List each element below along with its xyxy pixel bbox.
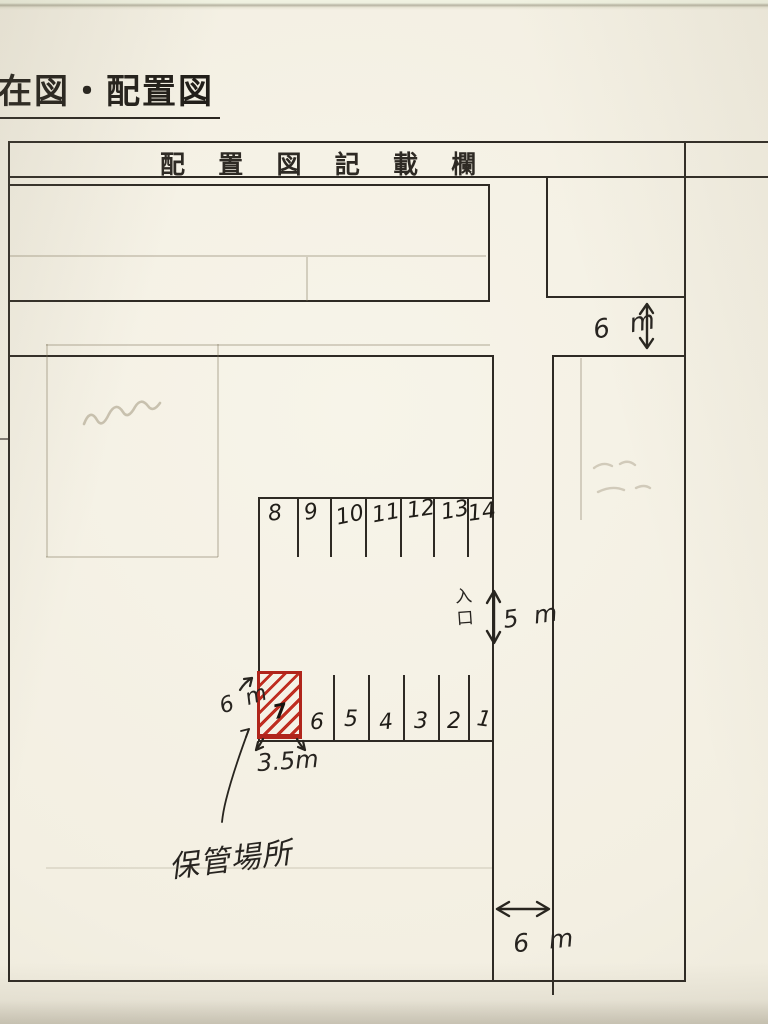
form-right-border: [684, 141, 686, 982]
stall-number: 5: [344, 707, 358, 732]
vertical-road-right-edge: [552, 355, 554, 995]
stall-divider: [365, 499, 367, 557]
left-margin-tick: [0, 438, 8, 440]
stall-number: 2: [447, 709, 461, 734]
stall-number: 9: [302, 499, 319, 526]
stall-divider: [333, 675, 335, 740]
left-block-right-edge: [488, 184, 490, 302]
stall-divider: [330, 499, 332, 557]
stall-number: 8: [267, 500, 284, 526]
stall-number: 3: [414, 709, 428, 734]
road-bottom-edge-left-segment: [8, 355, 494, 357]
pencil-ghost-scribble: [84, 402, 160, 424]
top-road-width-label: 6 m: [591, 304, 663, 345]
pencil-ghost-line: [10, 255, 486, 257]
stall-number: 4: [378, 709, 395, 735]
right-block-left-edge: [546, 178, 548, 298]
storage-location-label: 保管場所: [166, 828, 294, 887]
pencil-ghost-line: [46, 867, 492, 869]
vertical-road-left-edge: [492, 355, 494, 982]
left-block-bottom-edge: [8, 300, 490, 302]
photographed-parking-layout-form: 在図・配置図 配 置 図 記 載 欄 8 9 10 11 12 13 14 7 …: [0, 0, 768, 1024]
left-block-top-edge: [8, 184, 490, 186]
pencil-ghost-line: [46, 556, 218, 558]
form-bottom-border: [8, 980, 686, 982]
pencil-ghost-marks: [594, 462, 650, 492]
form-header-bottom-border: [8, 176, 768, 178]
stall-number: 10: [334, 500, 367, 530]
stall-number: 12: [405, 495, 436, 524]
pencil-ghost-line: [217, 344, 219, 557]
bottom-road-width-label: 6 m: [512, 923, 581, 959]
road-bottom-edge-right-segment: [552, 355, 686, 357]
form-left-border: [8, 141, 10, 982]
stall-divider: [468, 675, 470, 740]
pencil-ghost-line: [580, 358, 582, 520]
dim-arrow-bottom-road: [497, 902, 549, 916]
paper-top-edge: [0, 0, 768, 10]
stall-number: 1: [475, 706, 492, 733]
stall-number: 14: [466, 498, 497, 527]
stall-divider: [297, 499, 299, 557]
stall-divider: [400, 499, 402, 557]
pencil-ghost-line: [306, 257, 308, 301]
stall-width-label: 3.5m: [256, 745, 319, 777]
storage-location-leader-arrow: [222, 729, 249, 822]
paper-bottom-shadow: [0, 1000, 768, 1024]
entrance-label: 入口: [448, 586, 476, 632]
form-top-border: [8, 141, 768, 143]
pencil-ghost-line: [46, 344, 48, 557]
parking-bottom-row-base-line: [258, 740, 494, 742]
page-title: 在図・配置図: [0, 74, 220, 119]
pencil-ghost-line: [46, 344, 490, 346]
stall-number: 13: [439, 496, 471, 525]
stall-divider: [403, 675, 405, 740]
stall-number: 6: [310, 710, 324, 735]
stall-divider: [438, 675, 440, 740]
stall-number: 11: [370, 499, 402, 528]
right-block-bottom-edge: [546, 296, 686, 298]
stall-divider: [368, 675, 370, 740]
